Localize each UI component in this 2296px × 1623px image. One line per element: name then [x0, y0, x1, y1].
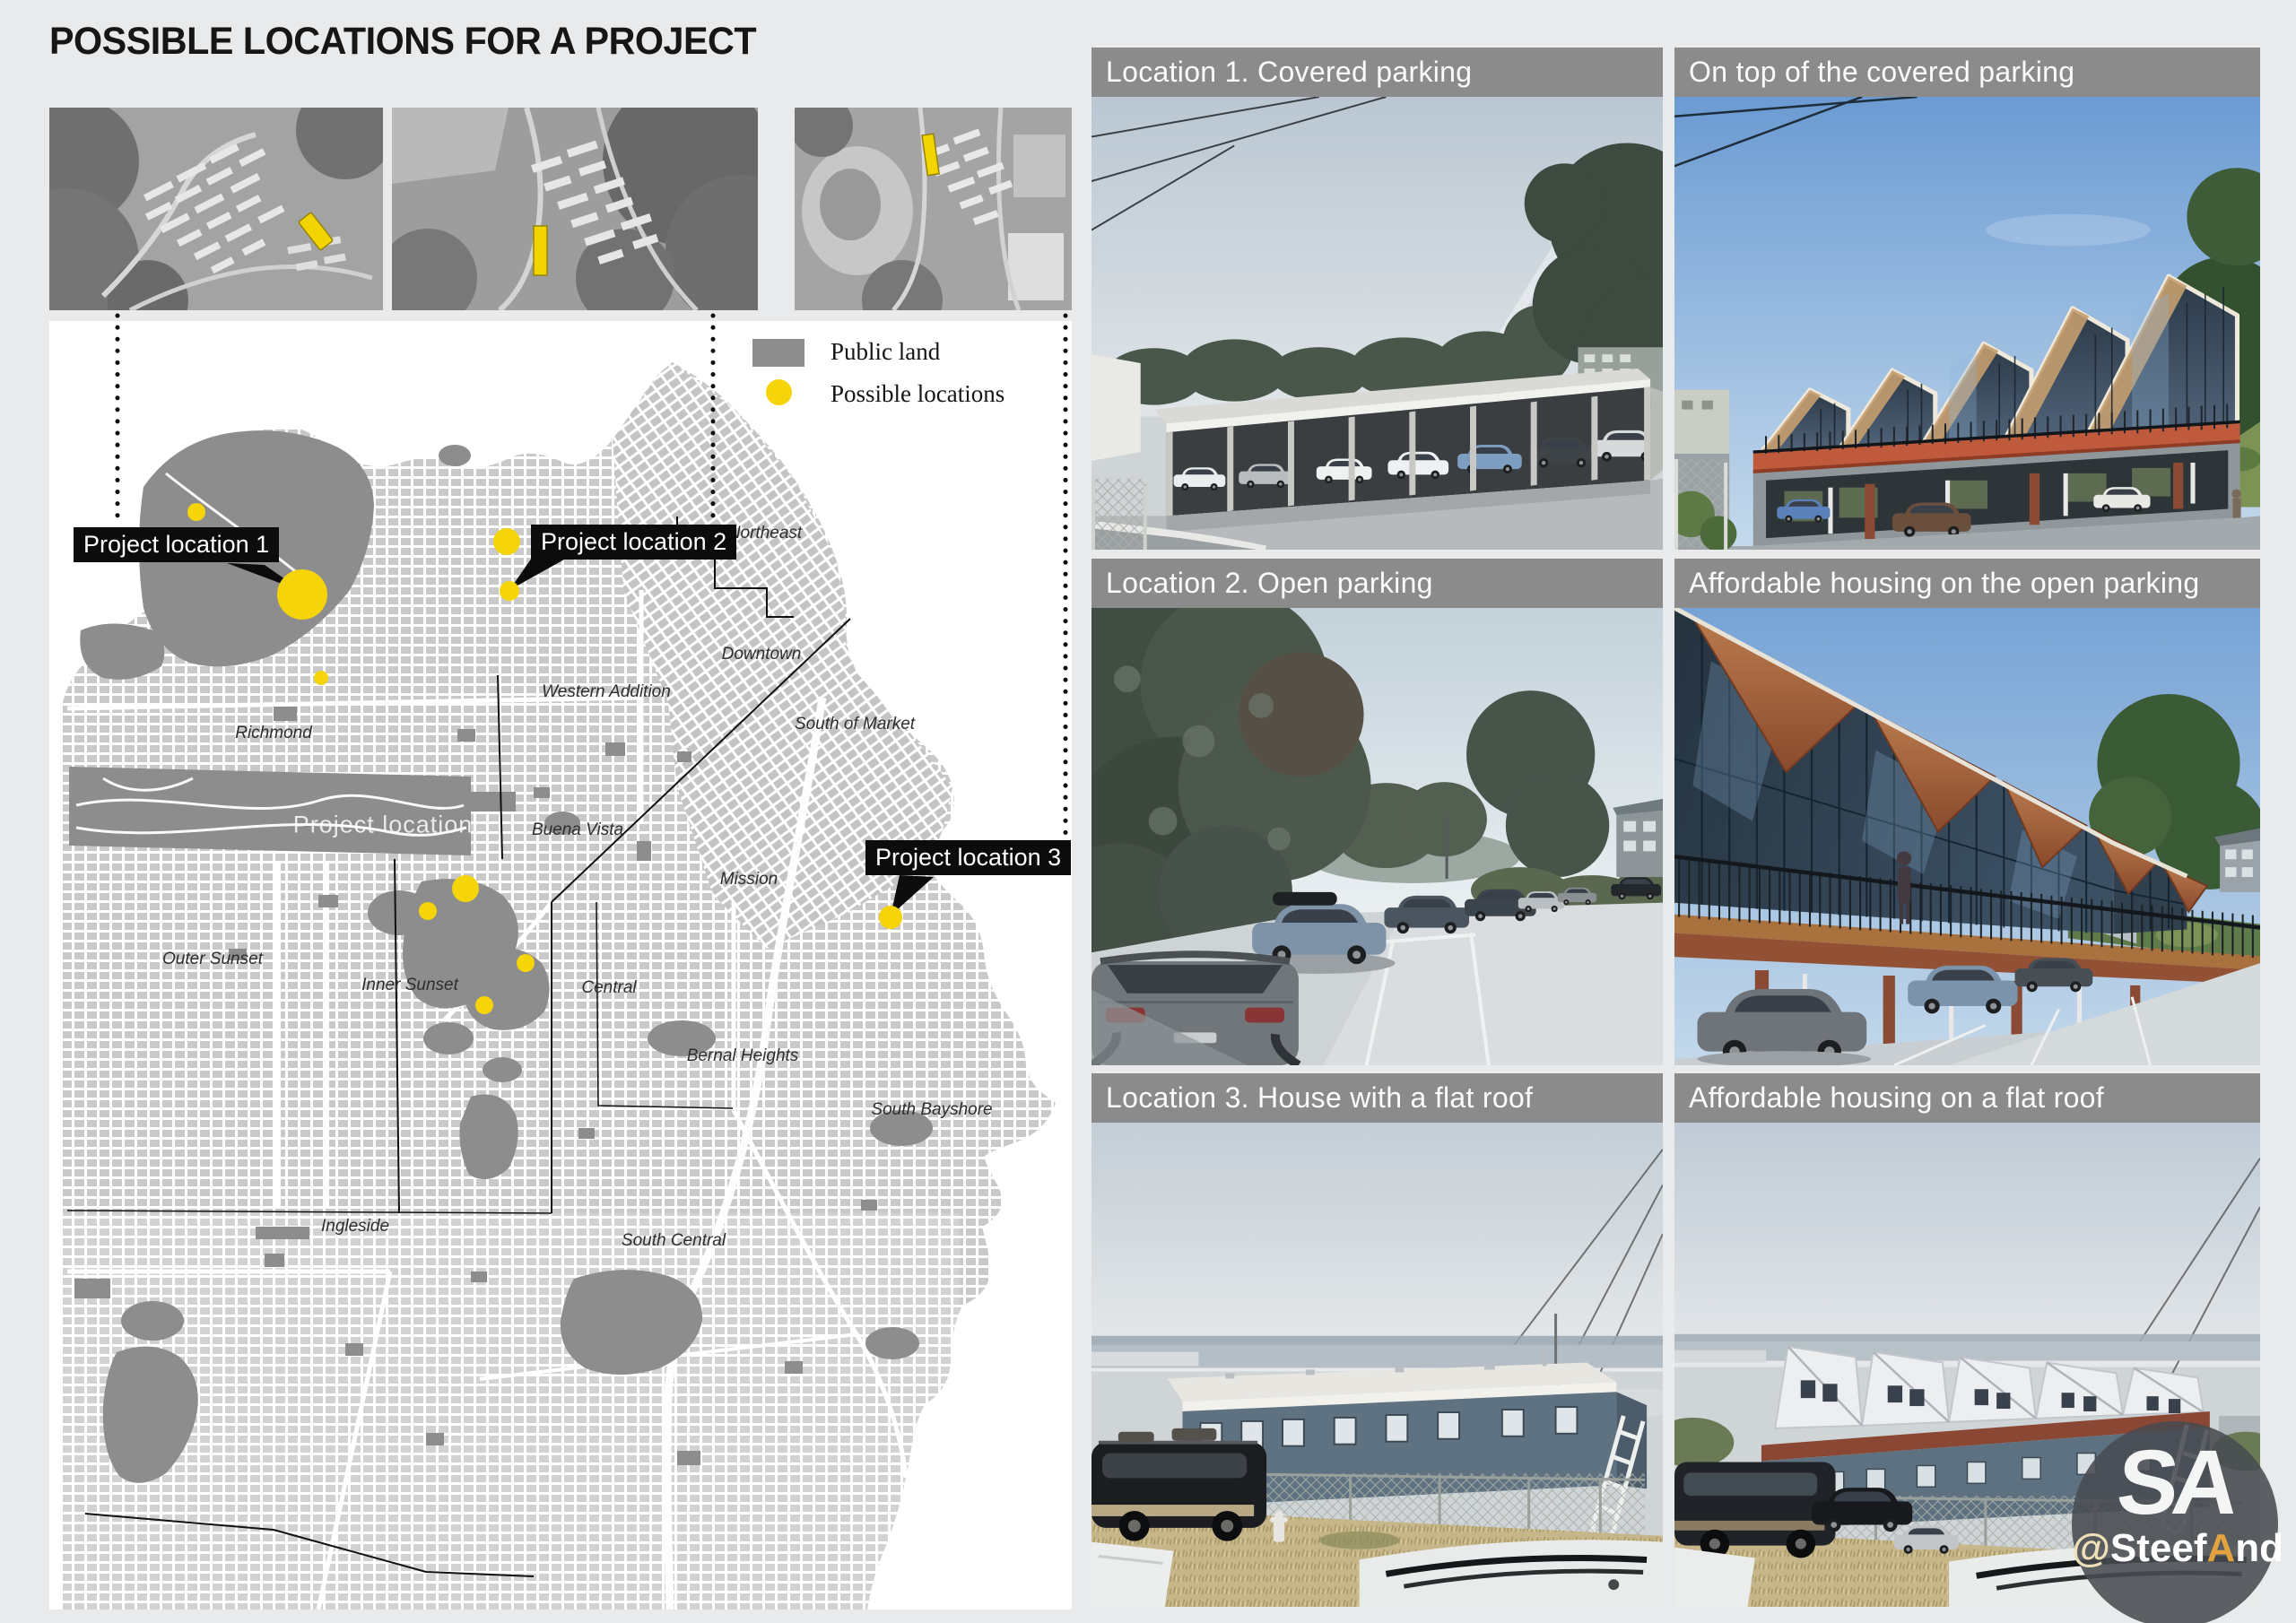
header-location-2: Location 2. Open parking — [1091, 559, 1663, 608]
header-location-3: Location 3. House with a flat roof — [1091, 1073, 1663, 1123]
neighborhood-bernal-heights: Bernal Heights — [687, 1046, 799, 1066]
neighborhood-downtown: Downtown — [722, 645, 802, 664]
legend-possible-locations-label: Possible locations — [831, 380, 1004, 408]
header-render-3: Affordable housing on a flat roof — [1674, 1073, 2260, 1123]
header-location-1: Location 1. Covered parking — [1091, 48, 1663, 97]
neighborhood-central: Central — [581, 978, 636, 998]
callout-project-location-1: Project location 1 — [74, 527, 279, 562]
page-title: POSSIBLE LOCATIONS FOR A PROJECT — [49, 20, 756, 64]
photo-covered-parking — [1091, 97, 1663, 550]
presentation-board: POSSIBLE LOCATIONS FOR A PROJECT — [0, 0, 2296, 1623]
legend-public-land-label: Public land — [831, 338, 940, 366]
neighborhood-mission: Mission — [720, 870, 778, 890]
header-render-1: On top of the covered parking — [1674, 48, 2260, 97]
ghost-project-location-label: Project location — [293, 811, 474, 839]
neighborhood-south-of-market: South of Market — [795, 715, 915, 734]
neighborhood-buena-vista: Buena Vista — [532, 820, 623, 840]
sa-badge-initials: SA — [2067, 1430, 2283, 1535]
neighborhood-south-central: South Central — [622, 1231, 726, 1251]
neighborhood-ingleside: Ingleside — [321, 1217, 389, 1237]
neighborhood-outer-sunset: Outer Sunset — [162, 950, 263, 969]
callout-project-location-3: Project location 3 — [865, 840, 1071, 875]
sa-badge: SA @SteefAnd — [2072, 1421, 2278, 1623]
legend-public-land-swatch — [752, 339, 804, 367]
aerial-photo-location-3 — [795, 108, 1072, 310]
render-housing-on-open-parking — [1674, 608, 2260, 1065]
header-render-2: Affordable housing on the open parking — [1674, 559, 2260, 608]
neighborhood-western-addition: Western Addition — [542, 682, 671, 702]
neighborhood-south-bayshore: South Bayshore — [871, 1100, 992, 1120]
legend-possible-locations-dot — [766, 379, 792, 405]
photo-flat-roof-house — [1091, 1123, 1663, 1607]
render-on-covered-parking — [1674, 97, 2260, 550]
callout-project-location-2: Project location 2 — [531, 525, 736, 560]
neighborhood-richmond: Richmond — [235, 724, 312, 743]
aerial-photo-location-1 — [49, 108, 383, 310]
neighborhood-northeast: Northeast — [728, 524, 802, 543]
aerial-photo-location-2 — [392, 108, 758, 310]
photo-open-parking — [1091, 608, 1663, 1065]
neighborhood-inner-sunset: Inner Sunset — [361, 976, 458, 995]
